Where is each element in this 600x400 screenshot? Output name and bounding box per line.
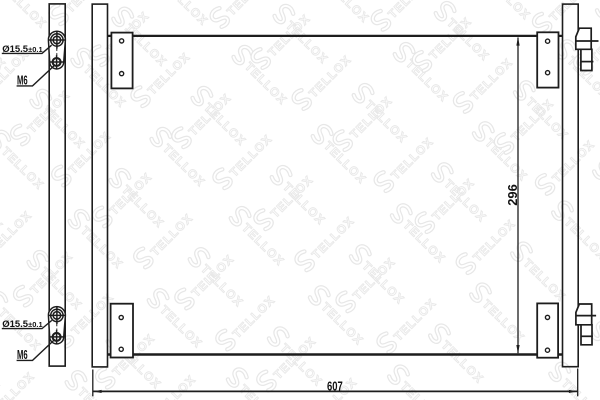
svg-text:M6: M6 (17, 74, 28, 89)
svg-text:607: 607 (327, 380, 343, 394)
svg-text:296: 296 (505, 184, 520, 206)
svg-text:Ø15.5±0.1: Ø15.5±0.1 (2, 319, 42, 330)
svg-text:M6: M6 (17, 348, 28, 363)
svg-text:Ø15.5±0.1: Ø15.5±0.1 (2, 44, 42, 55)
